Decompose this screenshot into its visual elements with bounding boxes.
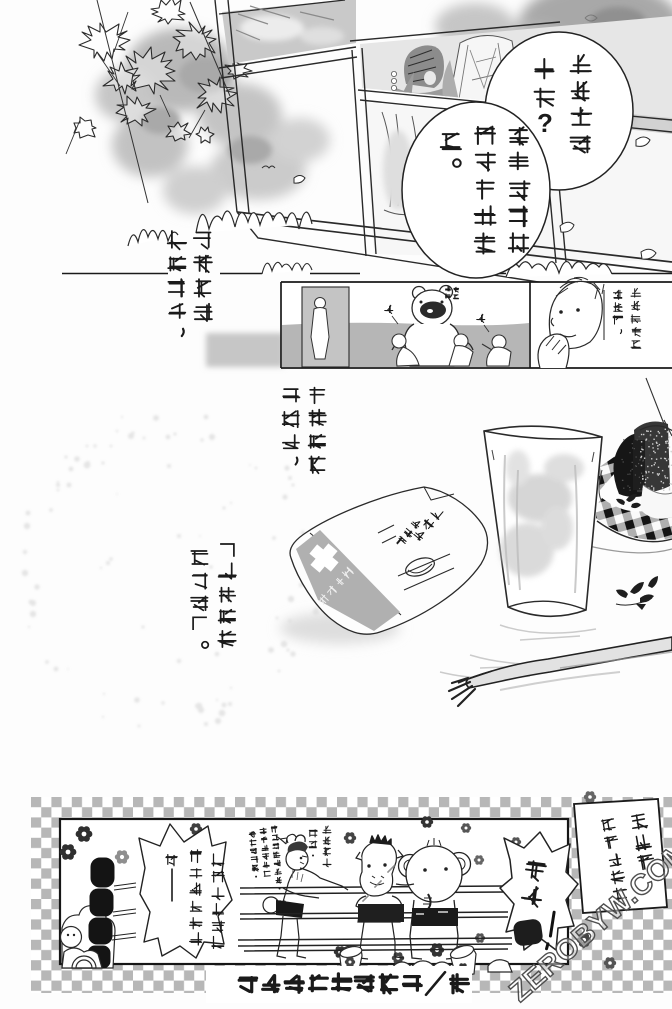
svg-text:?: ? (537, 108, 553, 138)
